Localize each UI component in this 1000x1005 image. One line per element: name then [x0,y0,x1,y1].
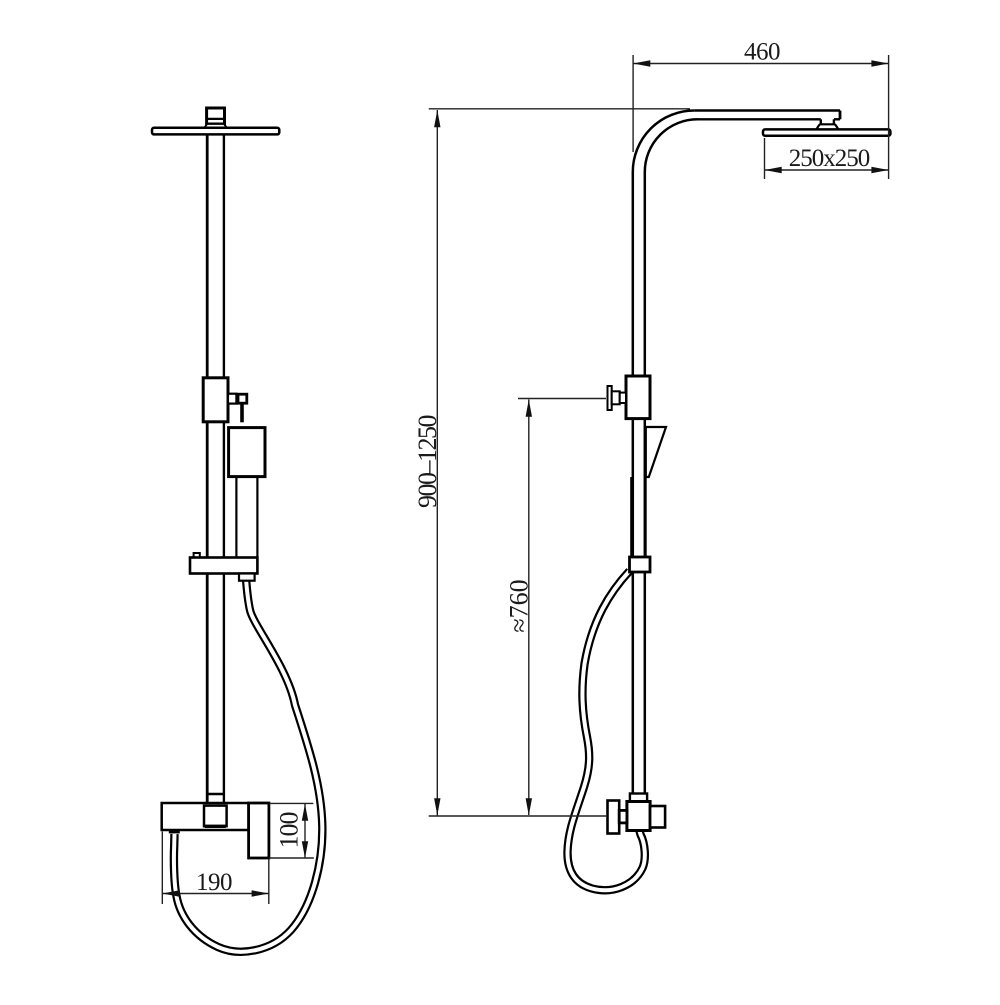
svg-text:250x250: 250x250 [789,145,870,172]
svg-text:190: 190 [196,869,232,896]
svg-text:460: 460 [744,39,780,66]
svg-text:≈760: ≈760 [505,579,534,632]
svg-text:900–1250: 900–1250 [413,415,442,509]
svg-text:100: 100 [275,812,304,849]
